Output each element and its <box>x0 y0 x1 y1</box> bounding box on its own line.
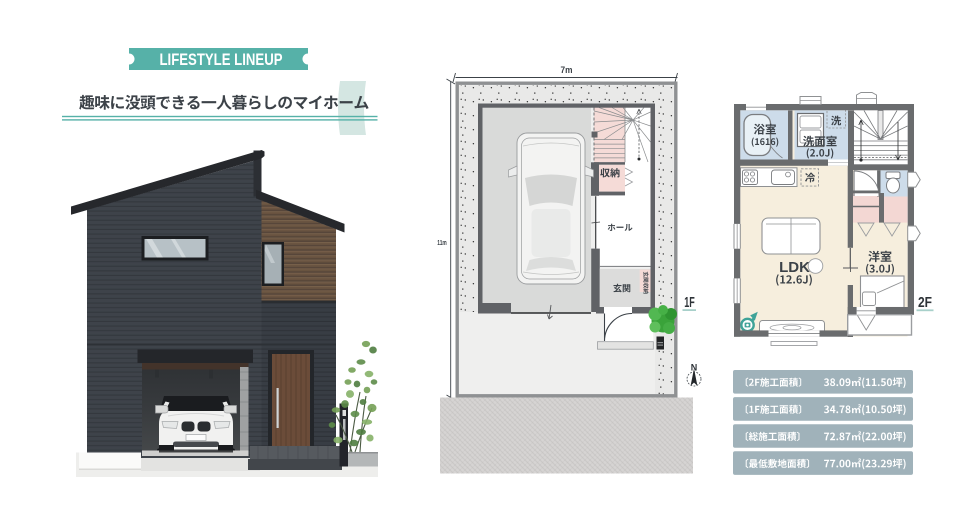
svg-text:2F: 2F <box>918 294 932 311</box>
svg-text:11m: 11m <box>437 238 447 247</box>
svg-text:7m: 7m <box>561 65 573 76</box>
svg-text:LIFESTYLE LINEUP: LIFESTYLE LINEUP <box>160 50 283 69</box>
svg-text:1F: 1F <box>684 294 695 311</box>
svg-text:LDK: LDK <box>779 259 810 276</box>
